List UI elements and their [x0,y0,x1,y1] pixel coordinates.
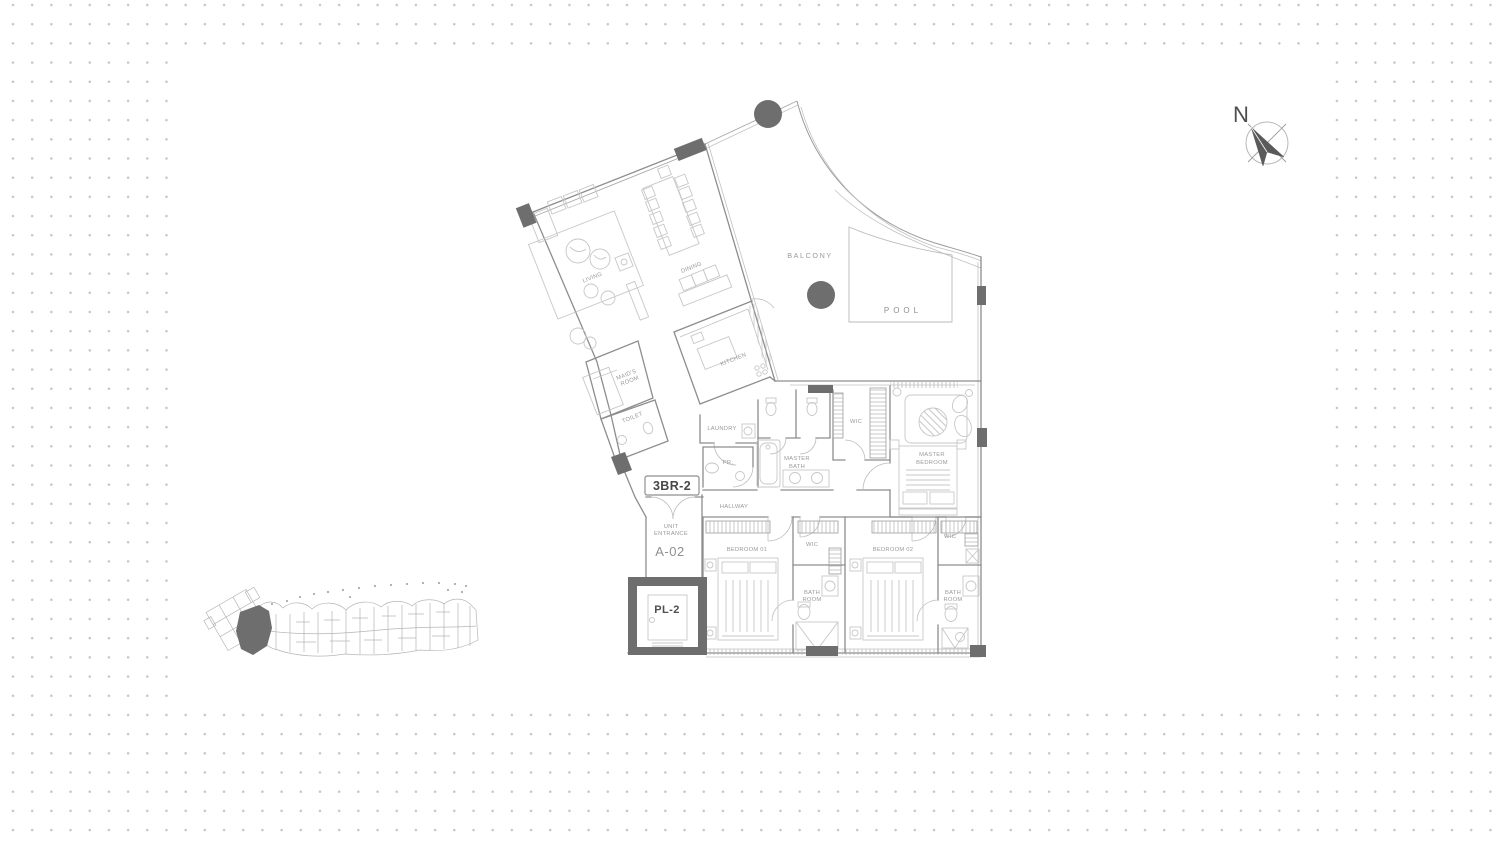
label-wic-2: WIC [944,534,956,540]
label-kitchen: KITCHEN [720,352,748,368]
bedroom2-furniture [850,558,923,640]
label-bathroom-1b: ROOM [802,597,821,603]
label-unit-entrance-1: UNIT [664,524,679,530]
label-wic-master: WIC [850,419,862,425]
label-unit-number: A-02 [655,544,684,559]
label-bathroom-2b: ROOM [943,597,962,603]
floor-plan: LIVING DINING KITCHEN MAID'S ROOM TOILET… [516,100,987,657]
label-master-bedroom-1: MASTER [919,452,945,458]
plan-drawing: LIVING DINING KITCHEN MAID'S ROOM TOILET… [0,0,1500,842]
label-living: LIVING [582,271,604,284]
label-laundry: LAUNDRY [707,426,736,432]
compass: N [1233,102,1288,166]
column-2 [807,281,835,309]
unit-type-badge: 3BR-2 [653,479,691,493]
label-unit-entrance-2: ENTRANCE [654,531,688,537]
label-master-bath-2: BATH [789,464,805,470]
key-plan [201,582,478,656]
label-powder-room: PR. [723,460,734,466]
label-toilet: TOILET [621,411,644,425]
page: { "page": { "dot_color": "#c6c6c6", "can… [0,0,1500,842]
dining-furniture [642,165,732,306]
label-elevator: PL-2 [654,604,679,616]
key-plan-unit-highlight [236,605,272,655]
label-master-bedroom-2: BEDROOM [916,460,948,466]
label-hallway: HALLWAY [720,504,748,510]
label-bathroom-1a: BATH [804,590,820,596]
label-bedroom-01: BEDROOM 01 [727,547,768,553]
label-master-bath-1: MASTER [784,456,810,462]
compass-north-label: N [1233,102,1249,127]
label-bathroom-2a: BATH [945,590,961,596]
label-bedroom-02: BEDROOM 02 [873,547,914,553]
label-wic-1: WIC [806,542,818,548]
living-furniture [529,184,649,349]
label-dining: DINING [680,261,703,275]
label-balcony: BALCONY [787,251,833,260]
bedroom1-furniture [705,558,778,640]
key-plan-trees [271,582,467,605]
label-pool: POOL [884,306,922,315]
column-1 [754,100,782,128]
